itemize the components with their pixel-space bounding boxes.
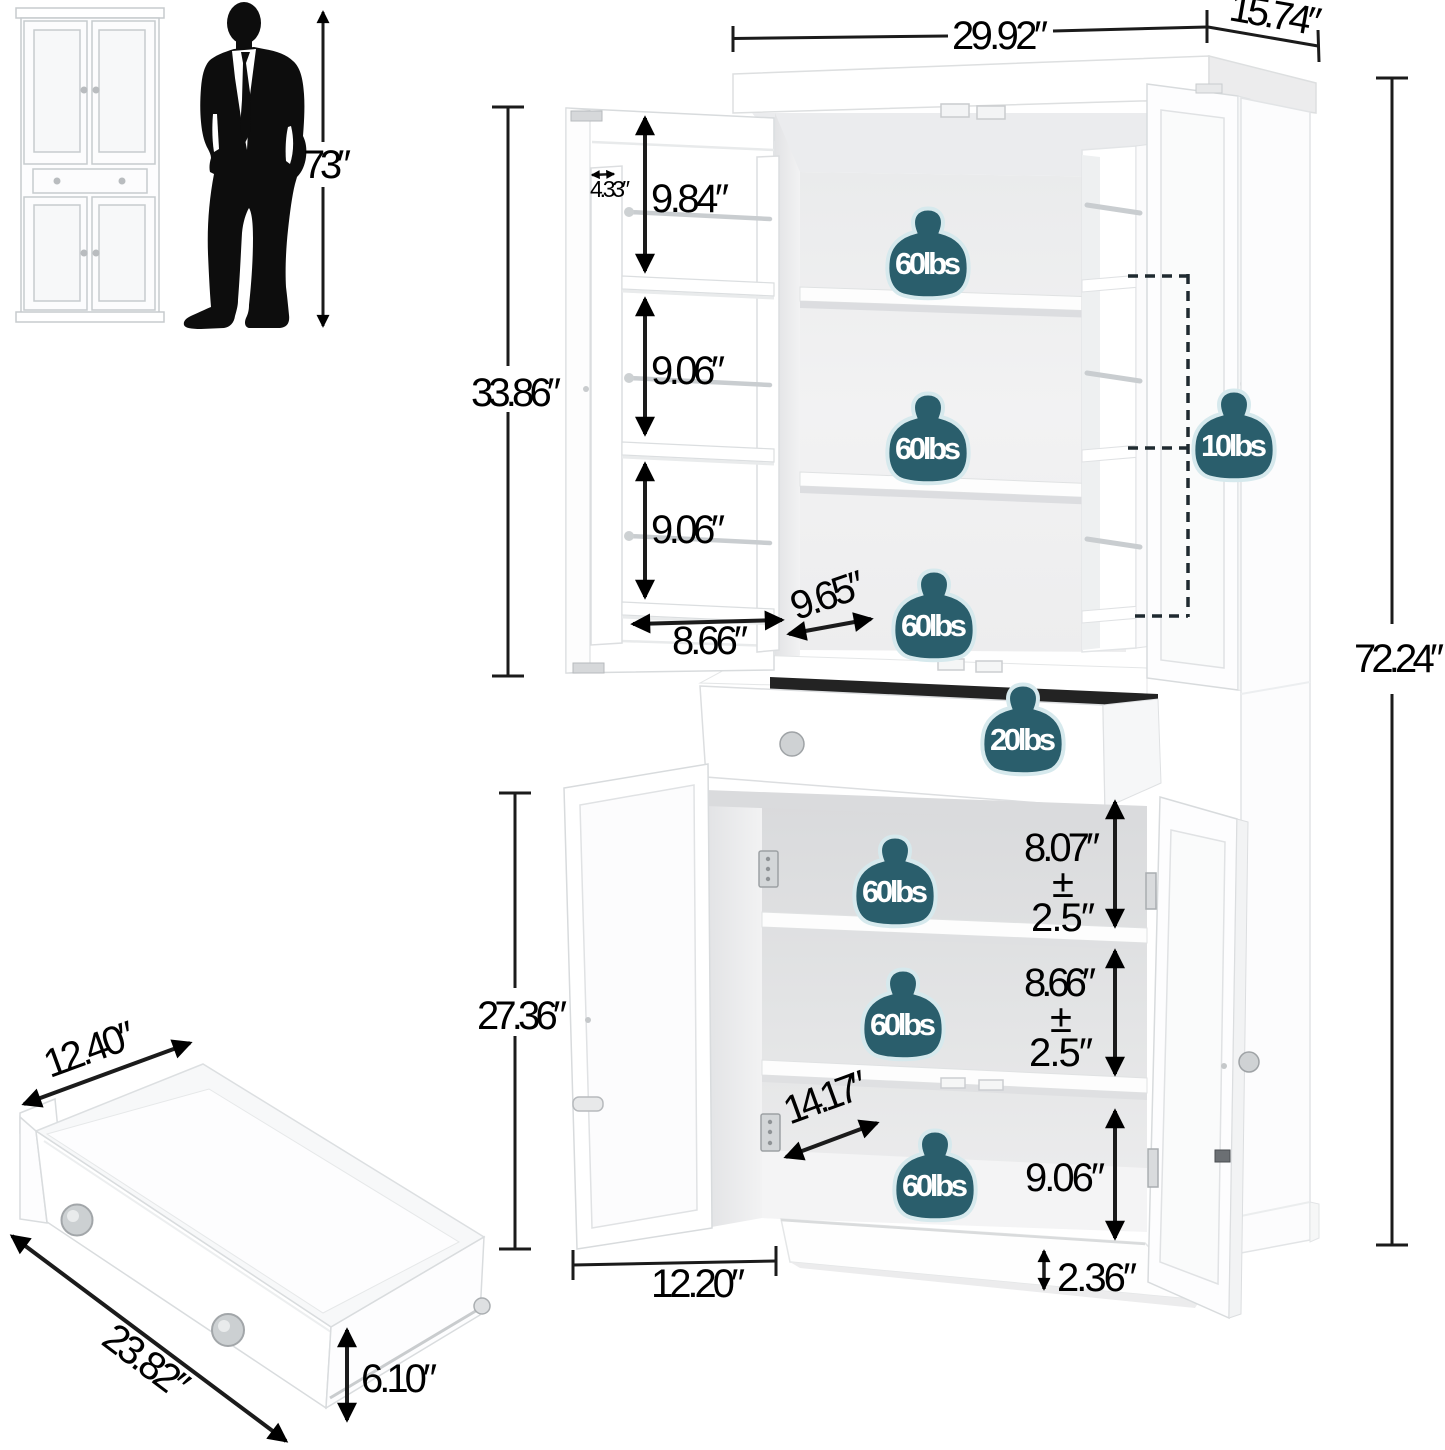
svg-text:73″: 73″	[303, 143, 351, 187]
svg-text:29.92″: 29.92″	[952, 14, 1048, 58]
svg-text:2.5″: 2.5″	[1031, 896, 1095, 940]
svg-text:60lbs: 60lbs	[870, 1007, 936, 1042]
svg-text:60lbs: 60lbs	[862, 874, 928, 909]
svg-text:2.36″: 2.36″	[1057, 1256, 1137, 1300]
svg-text:72.24″: 72.24″	[1354, 637, 1444, 681]
svg-text:60lbs: 60lbs	[895, 431, 961, 466]
svg-text:12.20″: 12.20″	[651, 1262, 745, 1306]
svg-text:60lbs: 60lbs	[901, 608, 967, 643]
svg-text:9.84″: 9.84″	[651, 177, 729, 221]
svg-text:9.06″: 9.06″	[1025, 1156, 1105, 1200]
svg-text:9.06″: 9.06″	[651, 349, 725, 393]
svg-text:9.06″: 9.06″	[651, 508, 725, 552]
svg-text:4.33″: 4.33″	[590, 176, 630, 202]
svg-text:27.36″: 27.36″	[477, 994, 567, 1038]
svg-text:20lbs: 20lbs	[990, 722, 1056, 757]
svg-text:60lbs: 60lbs	[895, 246, 961, 281]
svg-text:60lbs: 60lbs	[902, 1168, 968, 1203]
svg-text:33.86″: 33.86″	[471, 371, 561, 415]
svg-text:6.10″: 6.10″	[361, 1357, 437, 1401]
svg-text:2.5″: 2.5″	[1029, 1031, 1093, 1075]
svg-text:10lbs: 10lbs	[1201, 428, 1267, 463]
svg-text:8.66″: 8.66″	[672, 619, 748, 663]
